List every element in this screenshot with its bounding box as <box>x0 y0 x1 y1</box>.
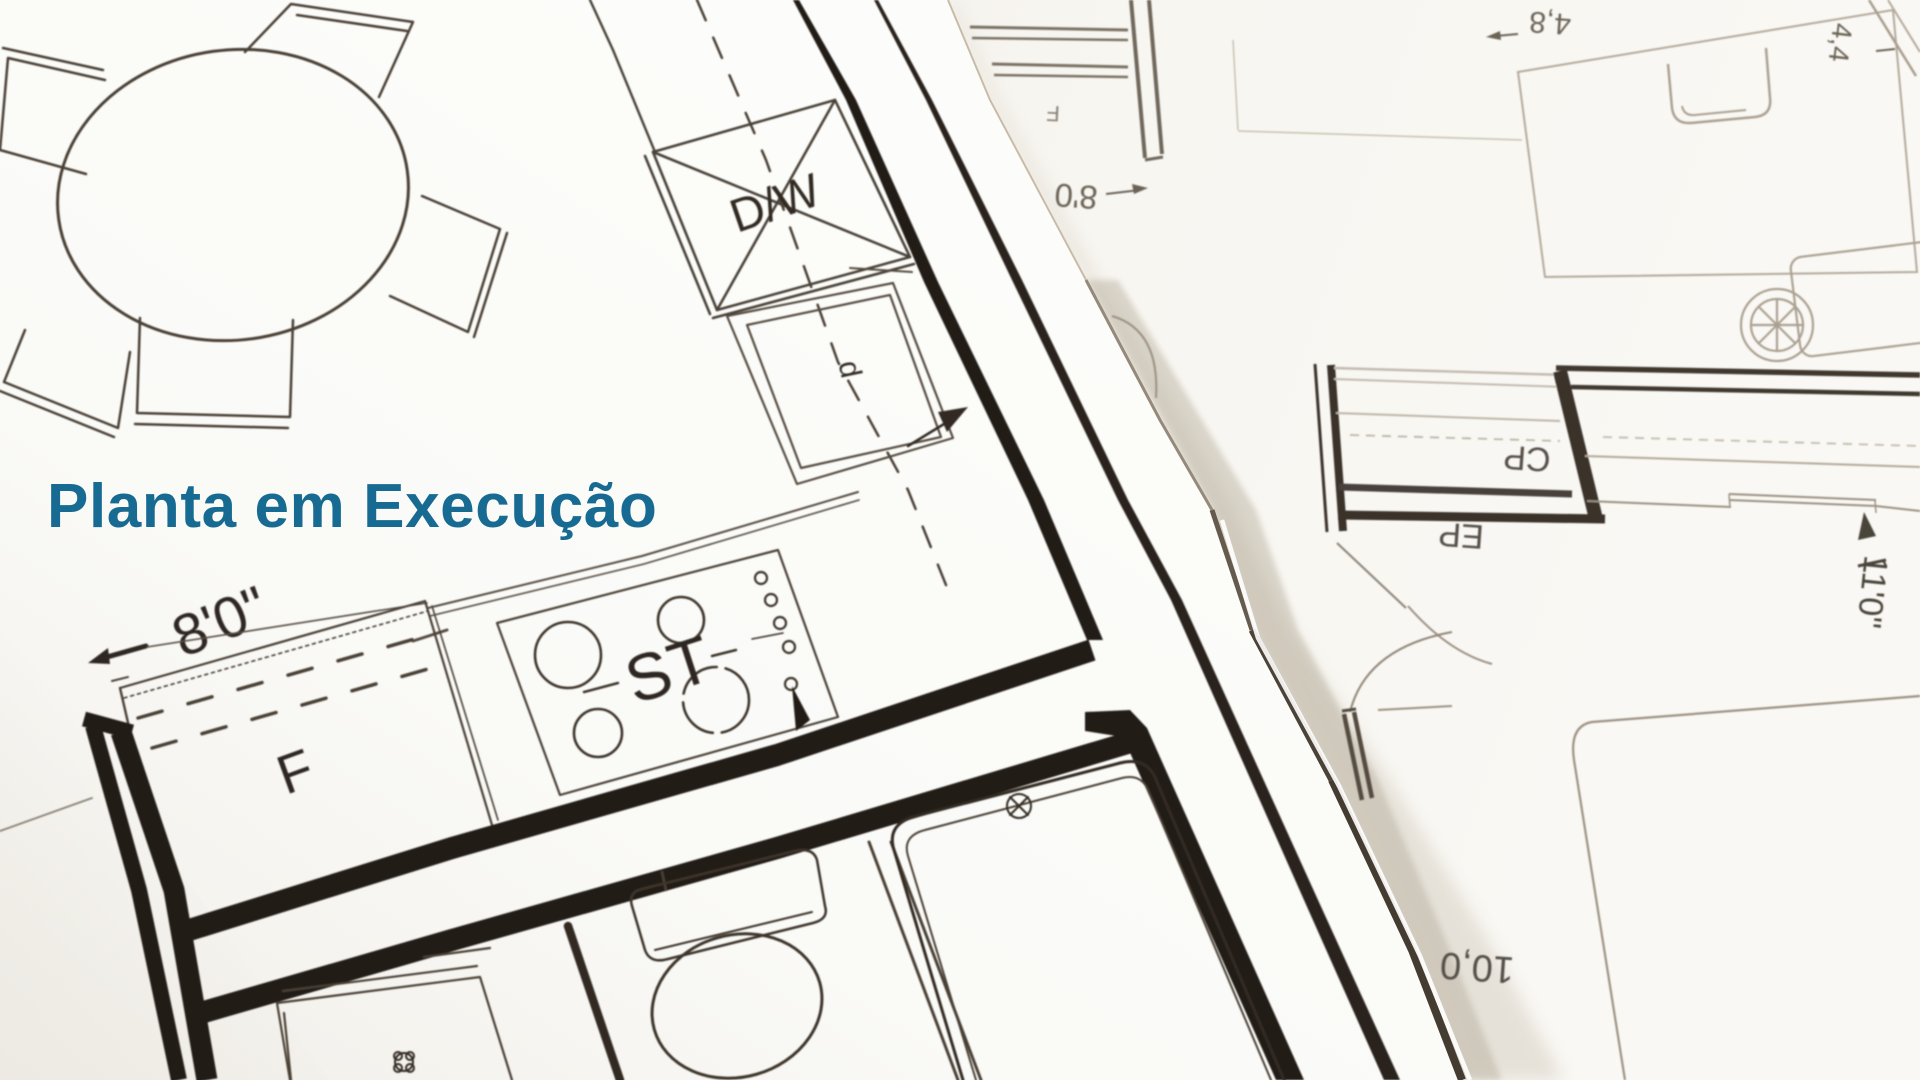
svg-text:CP: CP <box>1502 437 1552 478</box>
svg-text:11'0": 11'0" <box>1849 554 1894 630</box>
svg-text:8'0: 8'0 <box>1053 176 1098 216</box>
svg-text:F: F <box>1046 101 1061 127</box>
svg-text:Planta em Execução: Planta em Execução <box>47 472 657 541</box>
svg-text:EP: EP <box>1437 514 1485 555</box>
svg-text:10,0: 10,0 <box>1439 943 1516 990</box>
svg-text:4,8: 4,8 <box>1528 5 1572 41</box>
svg-text:4,4: 4,4 <box>1823 21 1859 63</box>
